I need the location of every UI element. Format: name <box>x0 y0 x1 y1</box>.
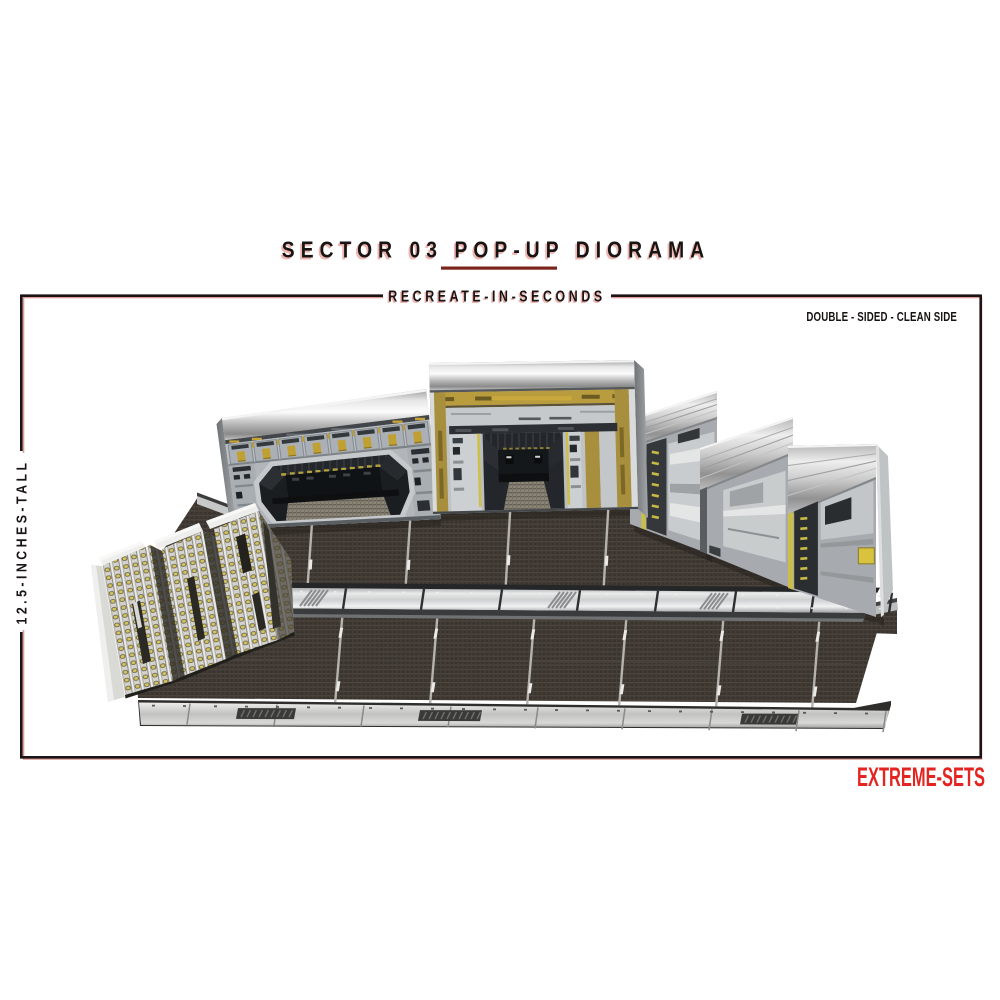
svg-text:SECTOR 03 POP-UP DIORAMA: SECTOR 03 POP-UP DIORAMA <box>282 237 710 263</box>
svg-text:RECREATE-IN-SECONDS: RECREATE-IN-SECONDS <box>388 287 605 305</box>
svg-text:DOUBLE - SIDED - CLEAN SIDE: DOUBLE - SIDED - CLEAN SIDE <box>806 311 957 324</box>
svg-text:12.5-INCHES-TALL: 12.5-INCHES-TALL <box>13 460 29 625</box>
svg-text:EXTREME-SETS: EXTREME-SETS <box>857 762 985 792</box>
